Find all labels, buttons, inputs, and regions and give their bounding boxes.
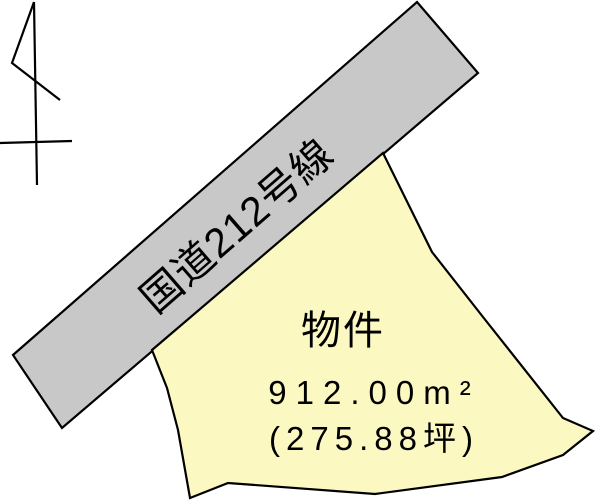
site-plan-canvas: 国道212号線 物件 912.00m² (275.88坪) xyxy=(0,0,600,500)
north-arrow-icon xyxy=(0,2,72,185)
north-arrow-crossbar xyxy=(0,141,72,143)
property-name-label: 物件 xyxy=(301,309,385,353)
property-area-sqm-label: 912.00m² xyxy=(268,374,479,411)
property-area-tsubo-label: (275.88坪) xyxy=(269,420,479,457)
north-arrow-staff xyxy=(34,2,37,185)
site-plan: 国道212号線 物件 912.00m² (275.88坪) xyxy=(0,0,600,500)
